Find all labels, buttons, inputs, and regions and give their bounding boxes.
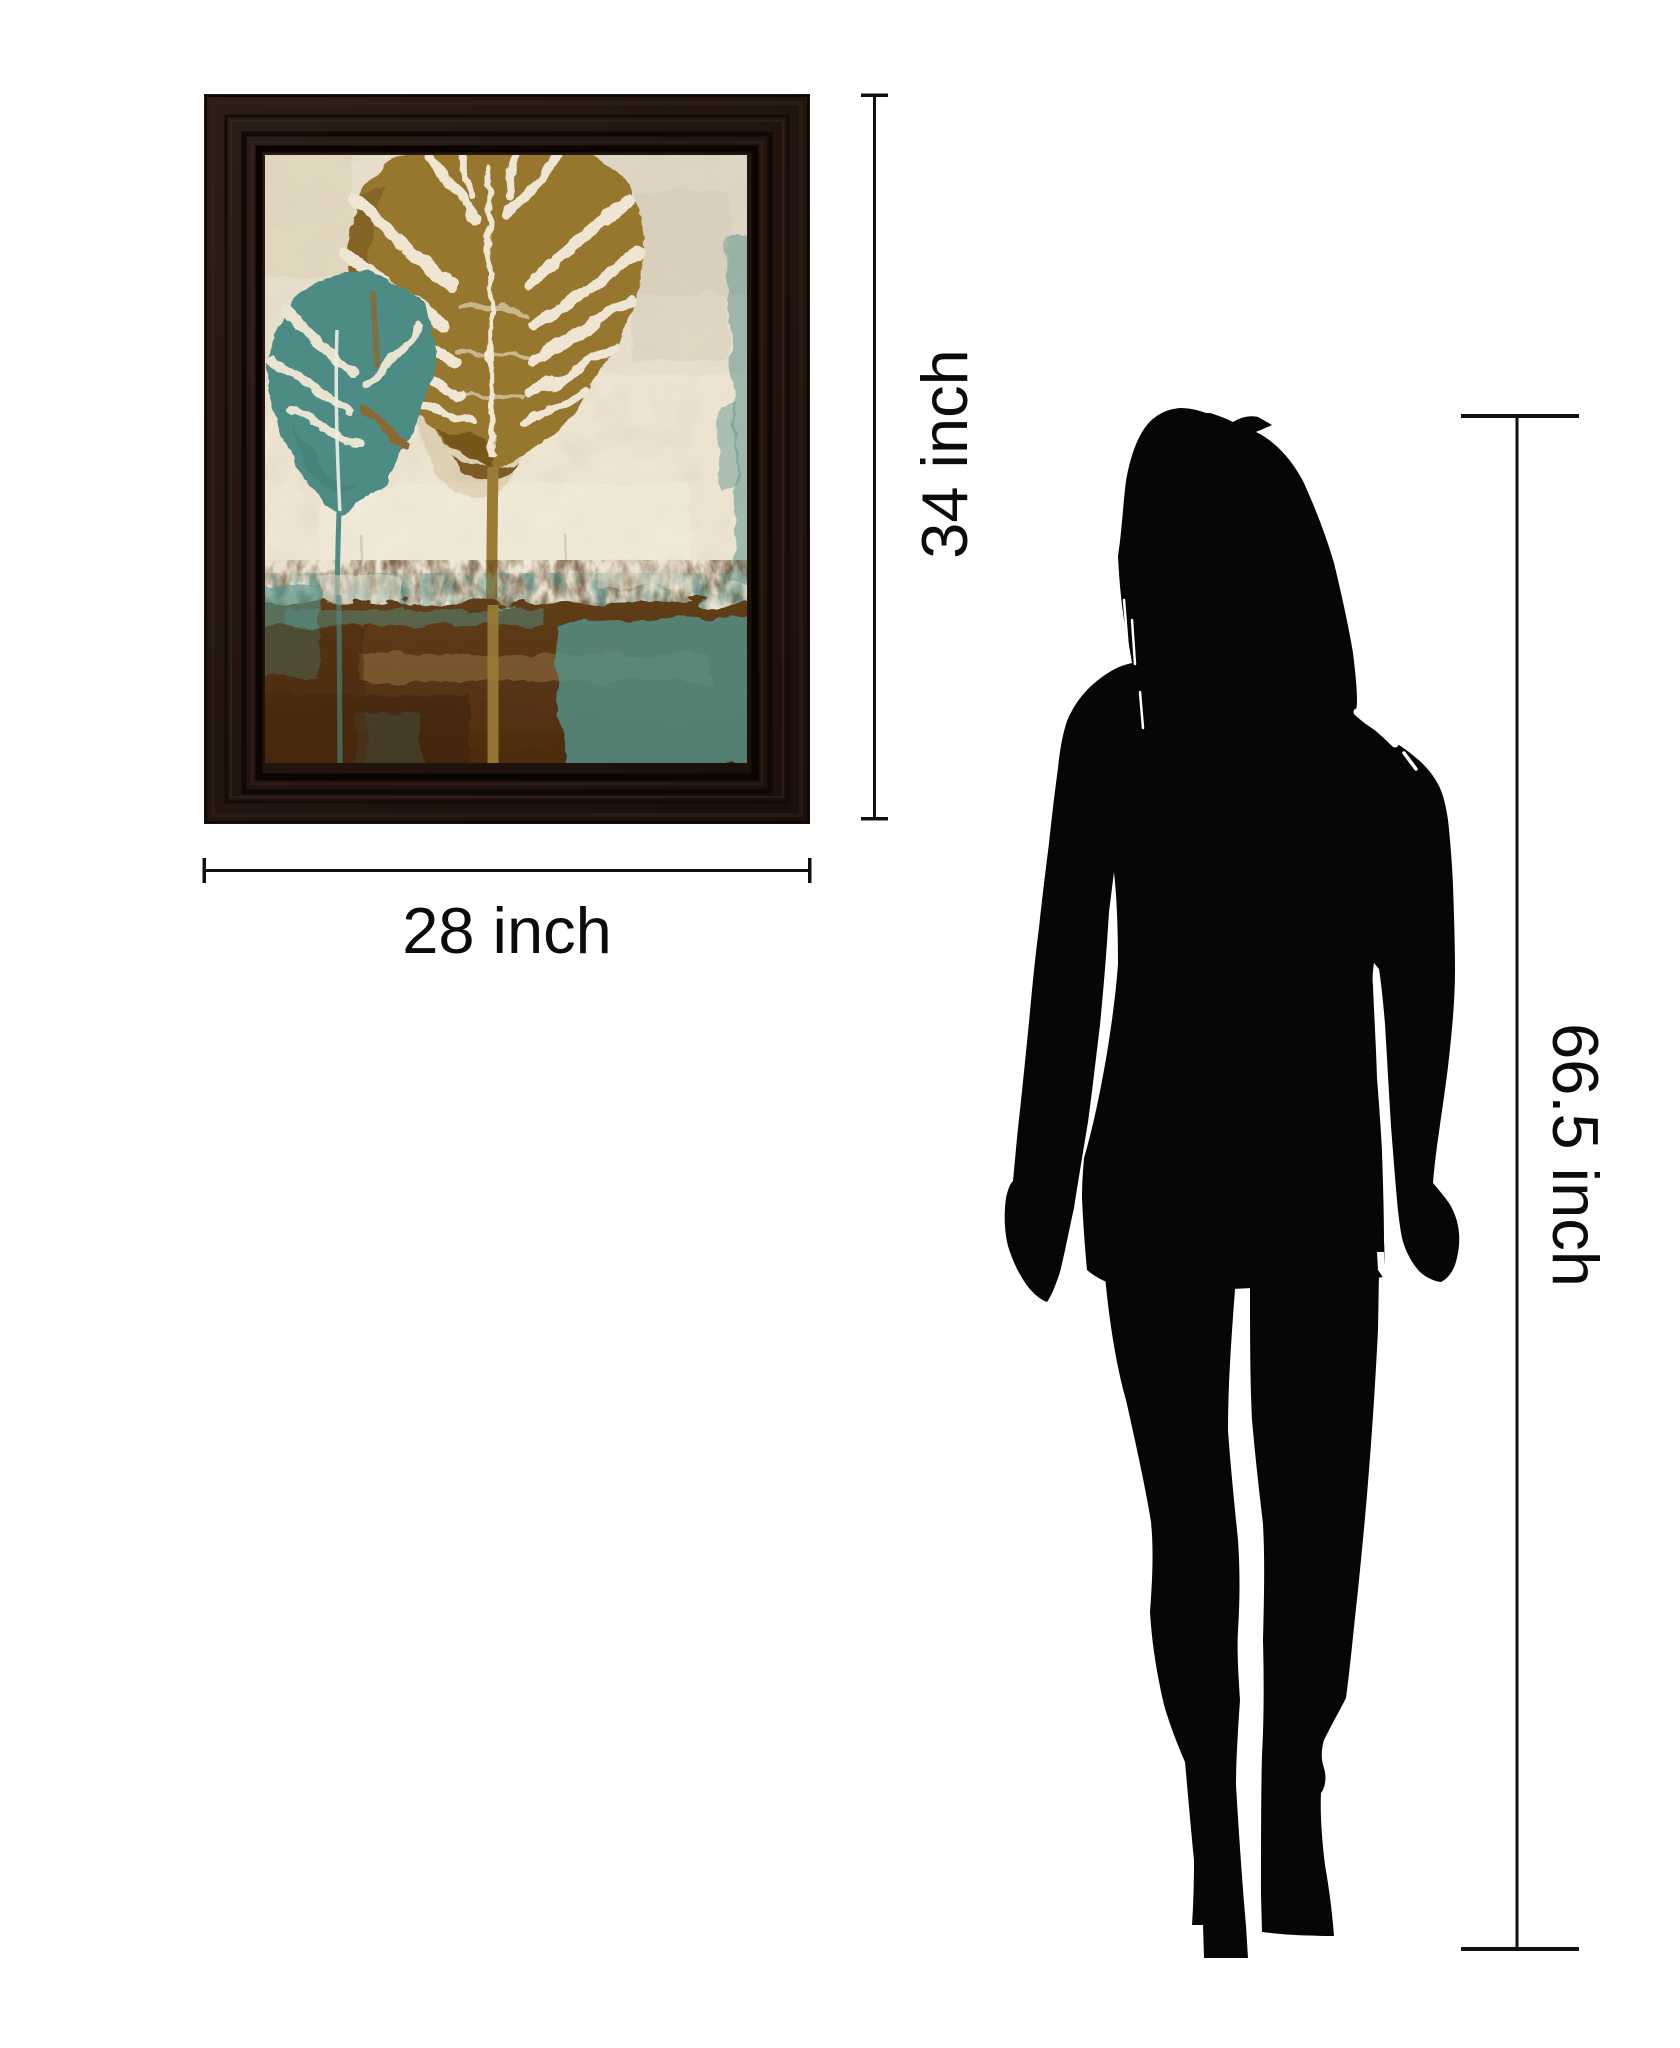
svg-text:34 inch: 34 inch [908,349,981,559]
svg-text:28 inch: 28 inch [402,894,612,967]
svg-text:66.5 inch: 66.5 inch [1539,1023,1612,1287]
